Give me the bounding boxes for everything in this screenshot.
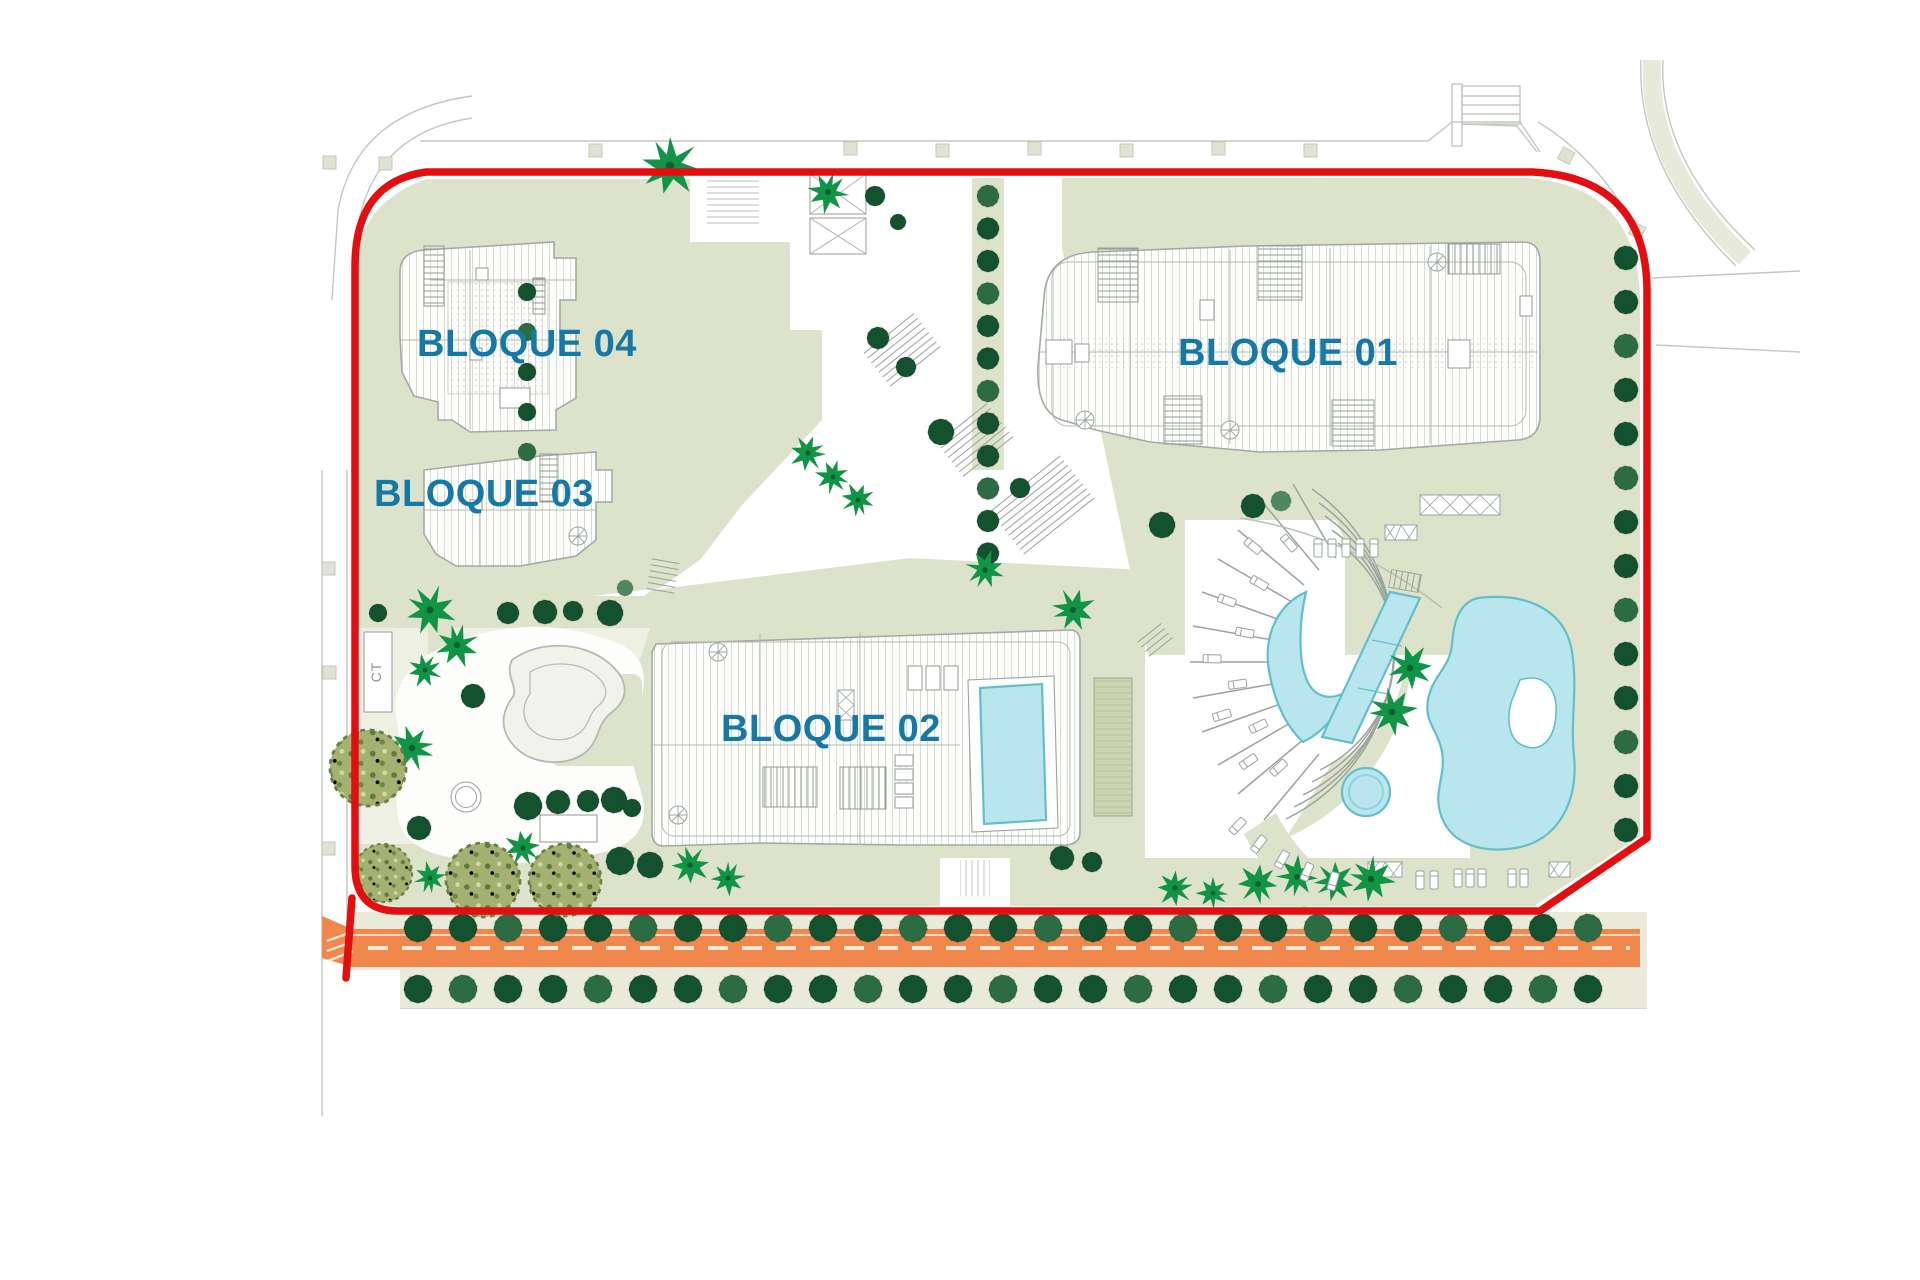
tree-instance [617,580,633,596]
tree-instance [629,914,657,942]
sun-lounger [1249,575,1269,591]
tree-instance [1304,975,1332,1003]
sun-lounger [1508,869,1516,887]
tree-instance [1614,554,1638,578]
tree-instance [854,914,882,942]
tree-instance [1124,914,1152,942]
tree-instance [1614,774,1638,798]
tree-instance [719,914,747,942]
tree-instance [899,914,927,942]
tree-instance [629,975,657,1003]
tree-instance [977,185,999,207]
tree-instance [989,914,1017,942]
tree-instance [1614,686,1638,710]
tree-instance [518,283,536,301]
sun-lounger [1356,539,1364,557]
tree-instance [1574,975,1602,1003]
tree-instance [577,790,599,812]
tree-instance [977,478,999,500]
rooftop-pool [980,684,1046,824]
tree-instance [546,790,570,814]
tree-instance [404,975,432,1003]
ct-transformer: CT [364,632,392,712]
tree-instance [497,602,519,624]
tree-instance [518,403,536,421]
tree-instance [865,186,885,206]
sun-lounger [1203,655,1221,663]
planter-band [1094,678,1132,816]
sun-lounger [1248,719,1268,734]
palm-instance [839,482,876,519]
tree-instance [461,684,485,708]
tree-instance [977,218,999,240]
tree-instance [1214,975,1242,1003]
ct-label: CT [368,662,384,683]
tree-instance [1439,975,1467,1003]
tree-instance [1394,975,1422,1003]
tree-instance [404,914,432,942]
tree-instance [637,852,663,878]
tree-instance [1394,914,1422,942]
tree-instance [1484,975,1512,1003]
sun-lounger [1228,817,1246,836]
tree-instance [494,914,522,942]
tree-instance [623,799,641,817]
tree-instance [977,510,999,532]
tree-instance [809,975,837,1003]
tree-instance [407,816,431,840]
tree-instance [989,975,1017,1003]
sun-lounger [1239,753,1258,770]
palm-instance [810,455,856,501]
tree-instance [1614,334,1638,358]
tree-instance [1439,914,1467,942]
tree-instance [1241,494,1265,518]
tree-instance [514,792,542,820]
tree-instance [1259,975,1287,1003]
tree-instance [1169,975,1197,1003]
sun-lounger [1520,869,1528,887]
olive-instance [330,730,406,806]
site-plan-canvas: BLOQUE 01 BLOQUE 02 BLOQUE 03 BLOQUE 04 … [0,0,1920,1280]
tree-instance [1614,598,1638,622]
tree-instance [1484,914,1512,942]
tree-instance [928,419,954,445]
pool-island [1509,678,1556,748]
tree-instance [809,914,837,942]
tree-instance [1614,290,1638,314]
context-structure [1452,84,1537,152]
site-plan-page: BLOQUE 01 BLOQUE 02 BLOQUE 03 BLOQUE 04 … [0,0,1920,1280]
sun-lounger [1370,539,1378,557]
tree-instance [1529,975,1557,1003]
tree-instance [1614,246,1638,270]
tree-instance [518,363,536,381]
label-bloque-02: BLOQUE 02 [721,708,941,750]
sun-lounger [1212,709,1232,722]
sun-lounger [1228,679,1247,689]
tree-instance [944,975,972,1003]
sun-lounger [1314,539,1322,557]
spa-pool [1342,768,1390,816]
tree-instance [1050,846,1074,870]
tree-instance [1259,914,1287,942]
sun-lounger [1466,869,1474,887]
tree-instance [719,975,747,1003]
tree-instance [977,283,999,305]
tree-instance [1034,914,1062,942]
label-bloque-04: BLOQUE 04 [417,323,637,365]
sun-lounger [1280,534,1298,553]
tree-instance [899,975,927,1003]
tree-instance [764,975,792,1003]
tree-instance [518,443,536,461]
tree-instance [1529,914,1557,942]
tree-instance [494,975,522,1003]
tree-instance [1614,642,1638,666]
olive-instance [446,843,520,917]
tree-instance [1614,378,1638,402]
tree-instance [674,975,702,1003]
sun-lounger [1328,539,1336,557]
tree-instance [533,600,557,624]
tree-instance [1349,914,1377,942]
tree-instance [1082,852,1102,872]
tree-instance [369,604,387,622]
tree-instance [896,357,916,377]
tree-instance [1079,914,1107,942]
tree-instance [1079,975,1107,1003]
tree-instance [977,250,999,272]
sun-lounger [1269,759,1288,777]
tree-instance [764,914,792,942]
tree-instance [977,413,999,435]
tree-instance [1304,914,1332,942]
tree-instance [597,600,623,626]
tree-instance [1349,975,1377,1003]
sun-lounger [1478,869,1486,887]
tree-instance [1169,914,1197,942]
sun-lounger [1430,871,1438,889]
sun-lounger [1243,537,1262,555]
tree-instance [890,214,906,230]
tree-instance [977,315,999,337]
tree-instance [1614,422,1638,446]
sun-lounger [1454,869,1462,887]
tree-instance [1614,818,1638,842]
tree-instance [1271,491,1291,511]
tree-instance [944,914,972,942]
sun-lounger [1217,594,1237,608]
tree-instance [977,348,999,370]
tree-instance [1034,975,1062,1003]
tree-instance [1149,512,1175,538]
tree-instance [867,327,889,349]
tree-instance [1010,478,1030,498]
tree-instance [539,975,567,1003]
tree-instance [1574,914,1602,942]
tree-instance [449,975,477,1003]
sun-lounger [1416,871,1424,889]
tree-instance [977,445,999,467]
olive-instance [529,844,601,916]
tree-instance [449,914,477,942]
tree-instance [563,601,583,621]
tree-instance [1614,730,1638,754]
label-bloque-03: BLOQUE 03 [374,473,594,515]
tree-instance [584,914,612,942]
tree-instance [539,914,567,942]
sun-lounger [1235,627,1254,638]
tree-instance [584,975,612,1003]
tree-instance [1614,510,1638,534]
tree-instance [1214,914,1242,942]
tree-instance [1614,466,1638,490]
tree-instance [977,380,999,402]
sun-lounger [1342,539,1350,557]
tree-instance [606,847,634,875]
tree-instance [674,914,702,942]
tree-instance [854,975,882,1003]
label-bloque-01: BLOQUE 01 [1178,332,1398,374]
context-road-curve [1652,60,1745,258]
garden-kiosk [540,815,597,842]
tree-instance [1124,975,1152,1003]
